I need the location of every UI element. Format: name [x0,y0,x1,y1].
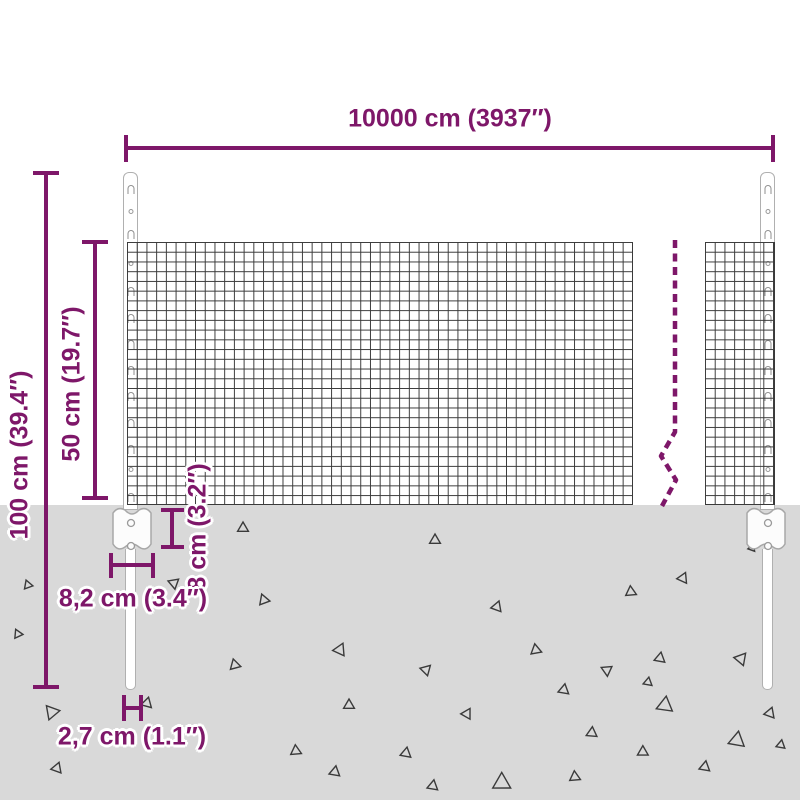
mesh-panel-right [705,242,775,505]
dimension-label: 2,7 cm (1.1″) [58,723,206,752]
dimension-line [170,510,174,547]
dimension-label: 10000 cm (3937″) [348,105,552,134]
post-slot-mark [127,230,134,239]
dimension-tick [122,695,126,721]
dimension-label: 50 cm (19.7″) [58,306,87,461]
dimension-tick [771,135,775,162]
dimension-label: 8 cm (3.2″) [184,463,213,590]
dimension-tick [161,545,184,549]
dimension-line [111,563,154,567]
fence-post-right-spike [762,549,773,690]
dimension-line [126,146,775,150]
post-hole-mark [765,209,770,214]
dimension-tick [161,508,184,512]
post-slot-mark [764,230,771,239]
fence-dimension-diagram: 10000 cm (3937″) 100 cm (39.4″) 50 cm (1… [0,0,800,800]
dimension-tick [139,695,143,721]
dimension-tick [33,685,59,689]
dimension-tick [151,553,155,578]
dimension-tick [82,240,108,244]
dimension-tick [33,171,59,175]
post-hole-mark [128,209,133,214]
dimension-tick [82,496,108,500]
dimension-line [44,173,48,687]
post-slot-mark [764,185,771,194]
dimension-tick [124,135,128,162]
dimension-label: 8,2 cm (3.4″) [59,585,207,614]
dimension-tick [109,553,113,578]
fence-post-left-spike [125,549,136,690]
break-line-icon [650,238,690,510]
fence-post-right-anchor-plate [745,504,787,554]
dimension-line [93,242,97,498]
dimension-label: 100 cm (39.4″) [6,370,35,539]
post-slot-mark [127,185,134,194]
fence-post-left-anchor-plate [111,504,153,554]
